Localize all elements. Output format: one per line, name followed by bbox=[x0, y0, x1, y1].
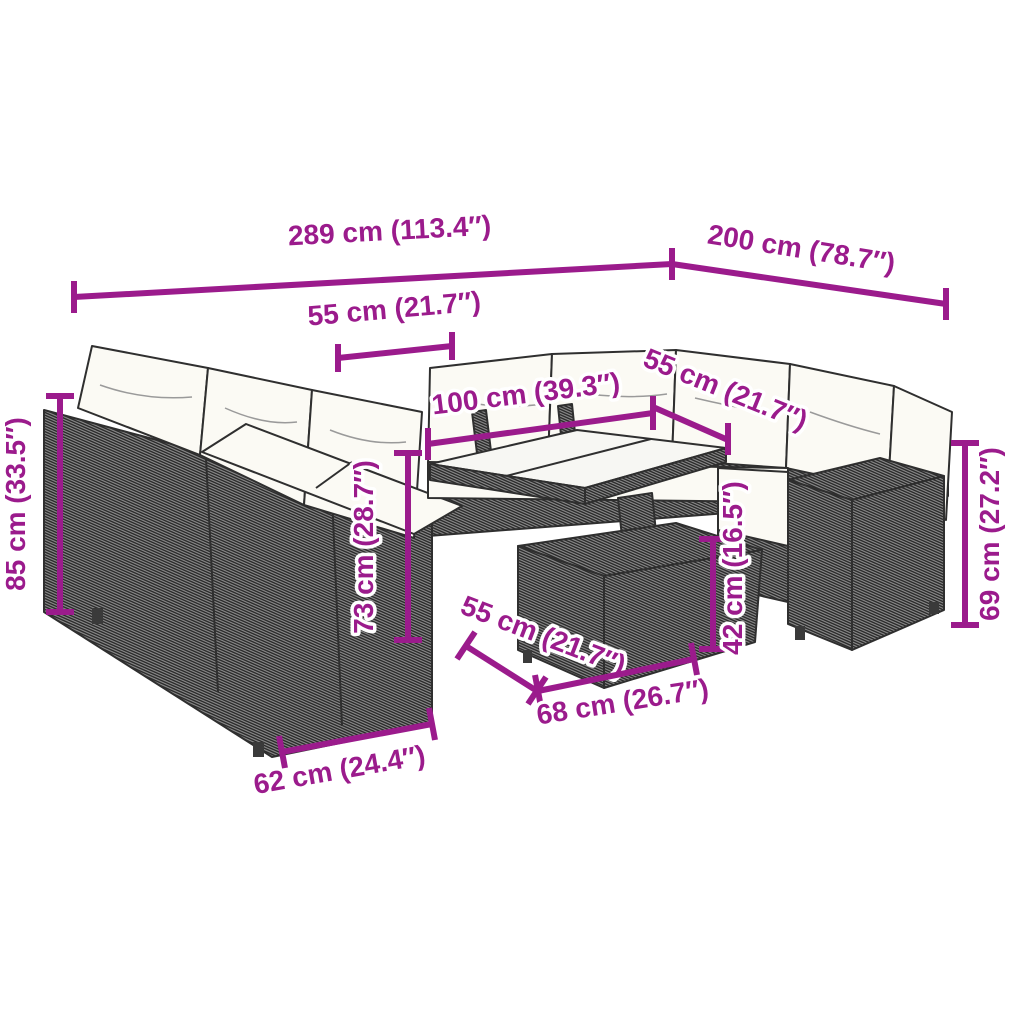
dimension-tick bbox=[429, 708, 435, 740]
dimension-line bbox=[338, 346, 452, 358]
dim-label-table-height-max: 73 cm (28.7″) bbox=[348, 460, 379, 634]
dim-sofa-height: 85 cm (33.5″) bbox=[0, 396, 74, 612]
dim-label-side-module-height: 69 cm (27.2″) bbox=[974, 447, 1005, 621]
dim-sofa-total-depth: 200 cm (78.7″) bbox=[672, 219, 946, 320]
side-cube-front bbox=[788, 480, 852, 650]
furniture-foot bbox=[253, 742, 264, 757]
dimension-line bbox=[672, 264, 946, 304]
product-dimension-diagram: 289 cm (113.4″) 200 cm (78.7″) 55 cm (21… bbox=[0, 0, 1024, 1024]
furniture-foot bbox=[795, 626, 805, 640]
furniture-foot bbox=[929, 602, 939, 614]
side-cube-side bbox=[852, 476, 944, 650]
dimension-line bbox=[74, 264, 672, 297]
furniture-foot bbox=[523, 650, 532, 663]
dim-side-module-height: 69 cm (27.2″) bbox=[951, 443, 1005, 625]
dimension-tick bbox=[457, 632, 475, 659]
dim-label-sofa-total-depth: 200 cm (78.7″) bbox=[706, 219, 898, 279]
dim-label-sofa-total-width: 289 cm (113.4″) bbox=[287, 210, 492, 252]
dim-back-seat-width: 55 cm (21.7″) bbox=[306, 286, 482, 372]
dim-label-back-seat-width: 55 cm (21.7″) bbox=[306, 286, 482, 332]
dim-label-table-height-min: 42 cm (16.5″) bbox=[717, 481, 748, 655]
diagram-svg: 289 cm (113.4″) 200 cm (78.7″) 55 cm (21… bbox=[0, 0, 1024, 1024]
dim-label-sofa-height: 85 cm (33.5″) bbox=[0, 417, 31, 591]
furniture-foot bbox=[92, 608, 103, 624]
